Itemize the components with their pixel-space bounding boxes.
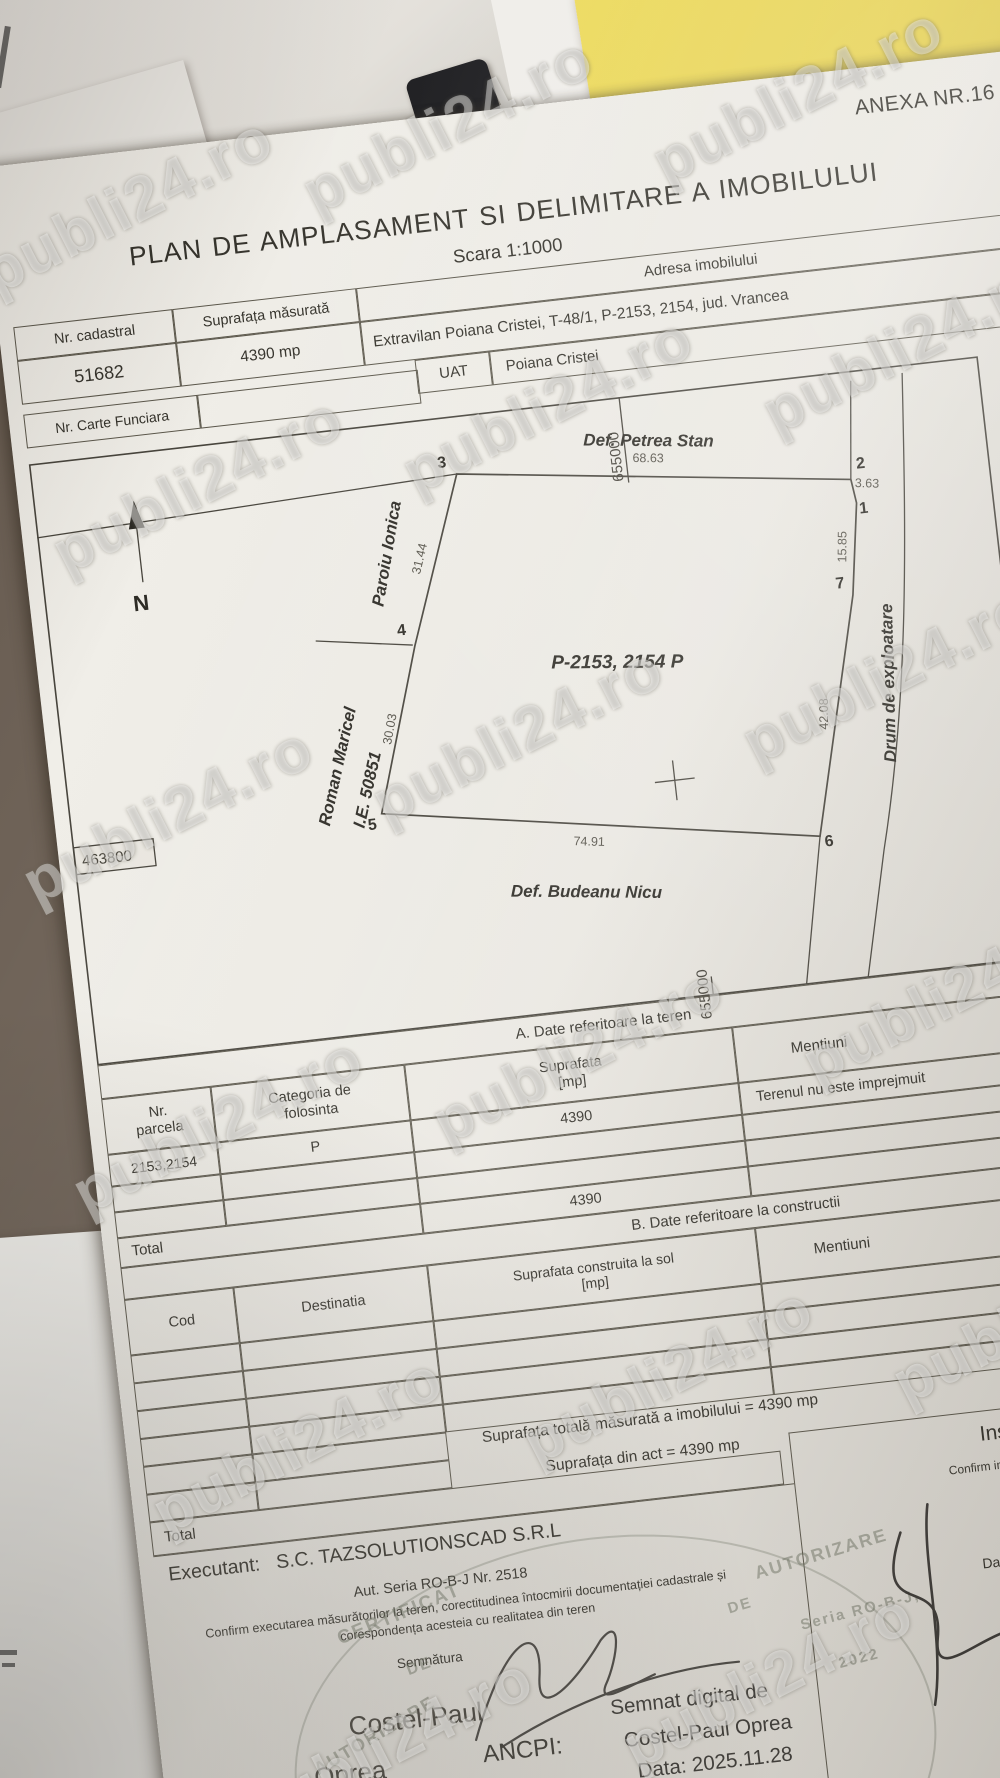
boundary-line xyxy=(790,836,836,983)
vertex-label: 3 xyxy=(436,454,447,472)
neighbor-label: Def. Budeanu Nicu xyxy=(511,882,663,902)
inspector-label: Inspector xyxy=(978,1413,1000,1447)
dimension-label: 68.63 xyxy=(632,451,663,465)
vertex-label: 4 xyxy=(396,622,407,640)
uat-label: UAT xyxy=(415,352,493,394)
dimension-label: 31.44 xyxy=(409,542,430,576)
neighbor-label: Def. Petrea Stan xyxy=(583,430,714,450)
document-sheet: ANEXA NR.16 PLAN DE AMPLASAMENT SI DELIM… xyxy=(0,26,1000,1778)
neighbor-label: Paroiu Ionica xyxy=(369,499,405,607)
plan-frame xyxy=(30,357,1000,1065)
dimension-label: 74.91 xyxy=(573,834,605,849)
pen-mark xyxy=(0,1650,17,1655)
vertex-label: 7 xyxy=(835,575,846,593)
vertex-label: 6 xyxy=(824,833,835,851)
north-label: N xyxy=(132,590,151,617)
pen-mark xyxy=(2,1663,15,1667)
site-plan-svg: 321765468.633.6315.8542.0874.9130.0331.4… xyxy=(29,356,1000,1065)
neighbor-label: I.E. 50851 xyxy=(350,750,385,830)
carte-funciara-label: Nr. Carte Funciara xyxy=(23,395,201,449)
site-plan: 321765468.633.6315.8542.0874.9130.0331.4… xyxy=(29,356,1000,1065)
vertex-label: 1 xyxy=(858,500,869,518)
inspector-signature xyxy=(826,1467,1000,1739)
north-arrow-icon xyxy=(126,500,145,530)
dimension-label: 15.85 xyxy=(835,531,849,562)
neighbor-label: Drum de exploatare xyxy=(877,603,900,762)
anexa-label: ANEXA NR.16 xyxy=(854,81,997,121)
parcel-label: P-2153, 2154 P xyxy=(551,651,684,673)
executant-label: Executant: xyxy=(167,1553,261,1585)
dimension-label: 42.08 xyxy=(817,698,831,729)
photo-of-cadastral-document: ANEXA NR.16 PLAN DE AMPLASAMENT SI DELIM… xyxy=(0,0,1000,1778)
dimension-label: 3.63 xyxy=(855,476,880,491)
stamp-text: DE xyxy=(404,1654,435,1680)
vertex-label: 2 xyxy=(855,455,866,473)
